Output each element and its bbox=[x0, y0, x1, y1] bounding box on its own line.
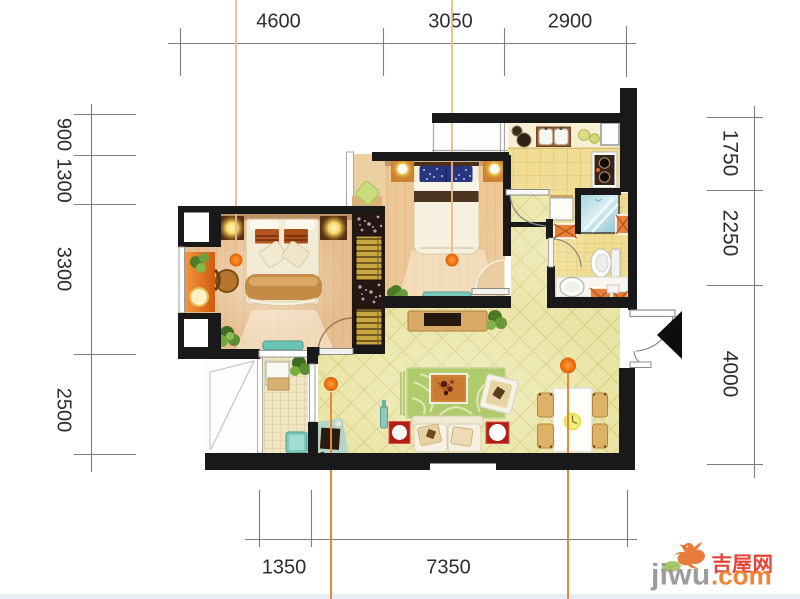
svg-text:3050: 3050 bbox=[428, 11, 473, 33]
svg-text:3300: 3300 bbox=[53, 247, 75, 292]
svg-text:.com: .com bbox=[711, 561, 772, 591]
svg-text:jiwu: jiwu bbox=[650, 559, 711, 592]
svg-text:2250: 2250 bbox=[719, 210, 742, 257]
svg-text:900: 900 bbox=[53, 118, 75, 151]
svg-text:2500: 2500 bbox=[53, 388, 75, 433]
svg-text:4600: 4600 bbox=[256, 11, 301, 33]
svg-text:7350: 7350 bbox=[426, 557, 471, 579]
svg-text:4000: 4000 bbox=[719, 351, 742, 398]
svg-text:1750: 1750 bbox=[719, 130, 742, 177]
svg-text:1300: 1300 bbox=[53, 158, 75, 203]
svg-text:1350: 1350 bbox=[262, 557, 307, 579]
svg-text:2900: 2900 bbox=[548, 11, 593, 33]
